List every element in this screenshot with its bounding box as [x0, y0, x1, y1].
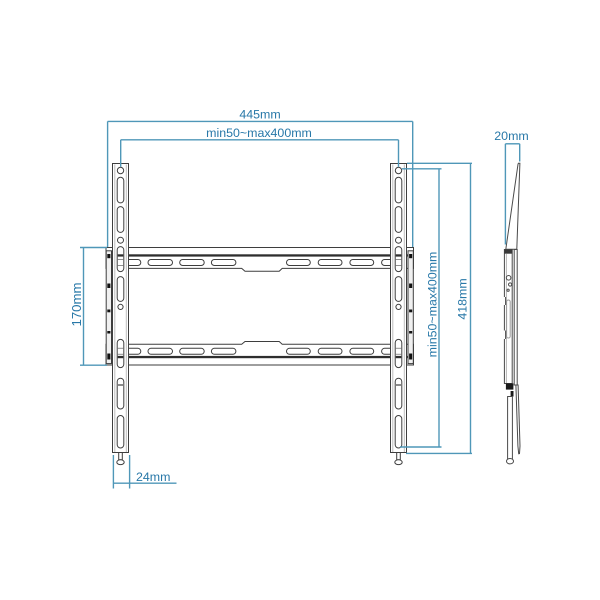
svg-text:24mm: 24mm: [136, 470, 170, 484]
svg-text:min50~max400mm: min50~max400mm: [425, 252, 439, 358]
svg-text:445mm: 445mm: [239, 108, 280, 122]
svg-text:min50~max400mm: min50~max400mm: [206, 126, 312, 140]
svg-text:418mm: 418mm: [455, 278, 469, 319]
svg-text:170mm: 170mm: [69, 283, 84, 327]
svg-text:20mm: 20mm: [494, 129, 528, 143]
